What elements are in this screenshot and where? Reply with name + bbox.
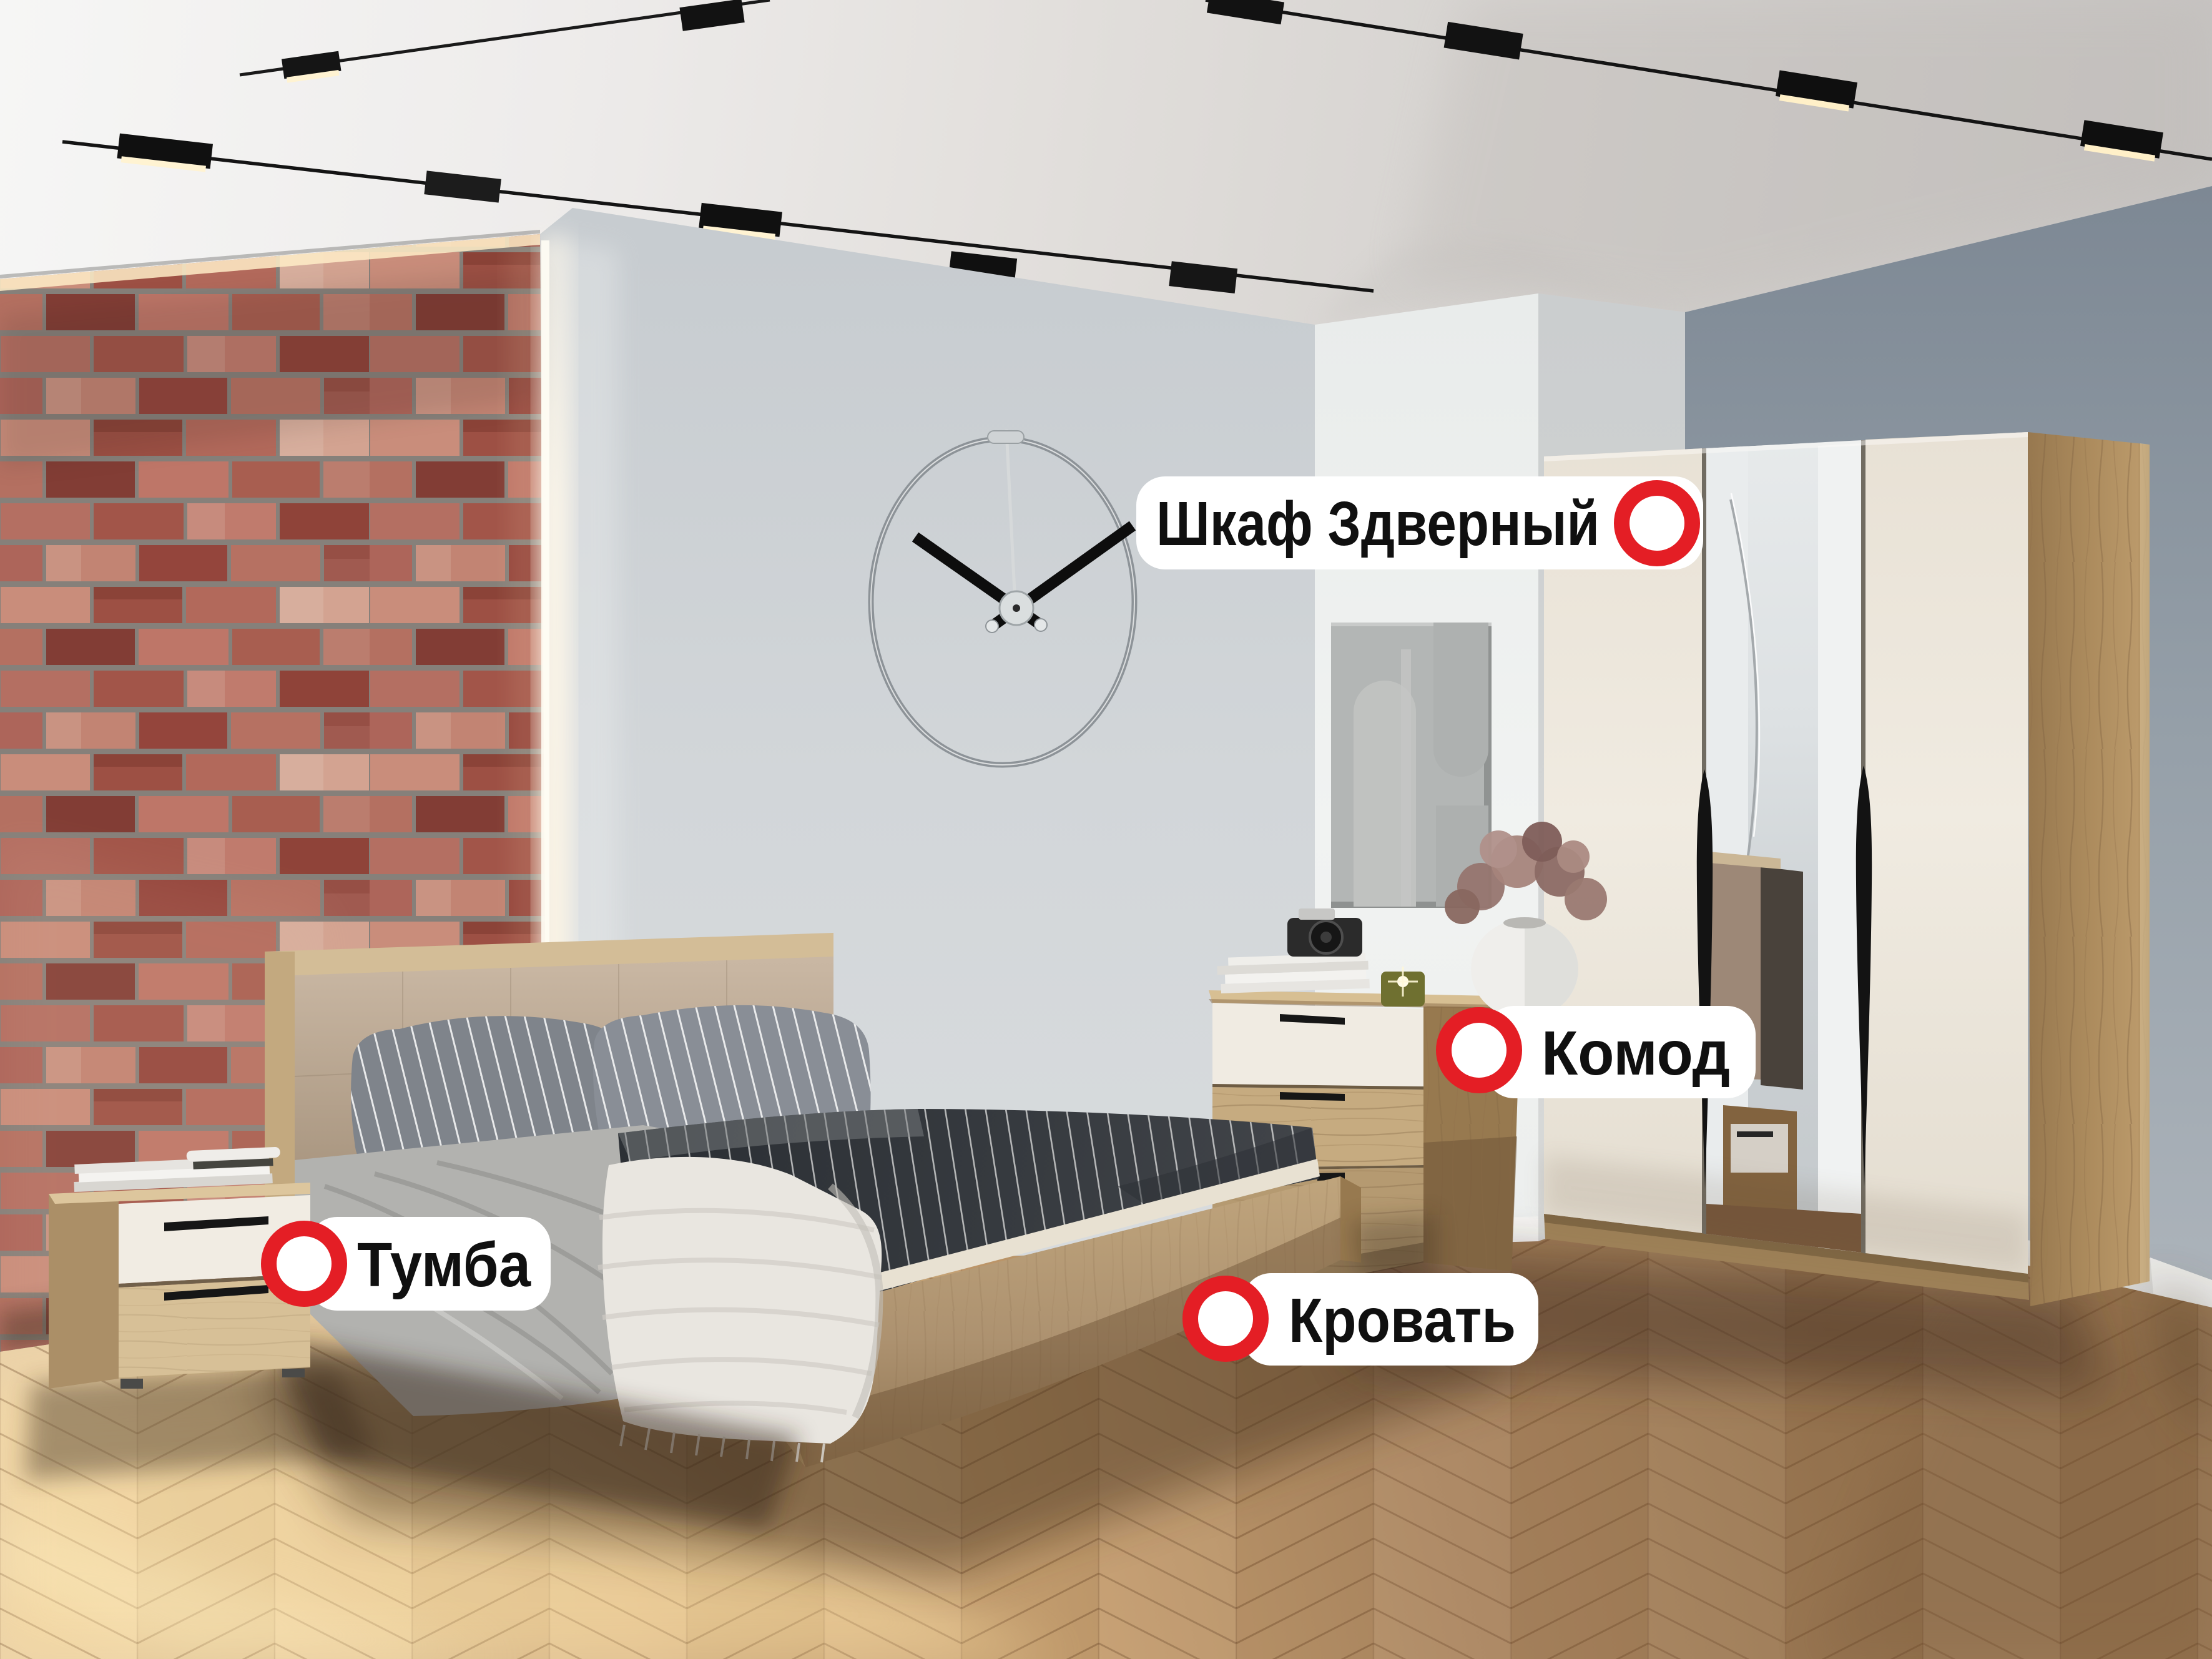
svg-text:Шкаф Здверный: Шкаф Здверный	[1156, 489, 1600, 559]
svg-text:Комод: Комод	[1541, 1018, 1730, 1088]
svg-text:Тумба: Тумба	[357, 1230, 531, 1300]
svg-text:Кровать: Кровать	[1289, 1286, 1516, 1356]
